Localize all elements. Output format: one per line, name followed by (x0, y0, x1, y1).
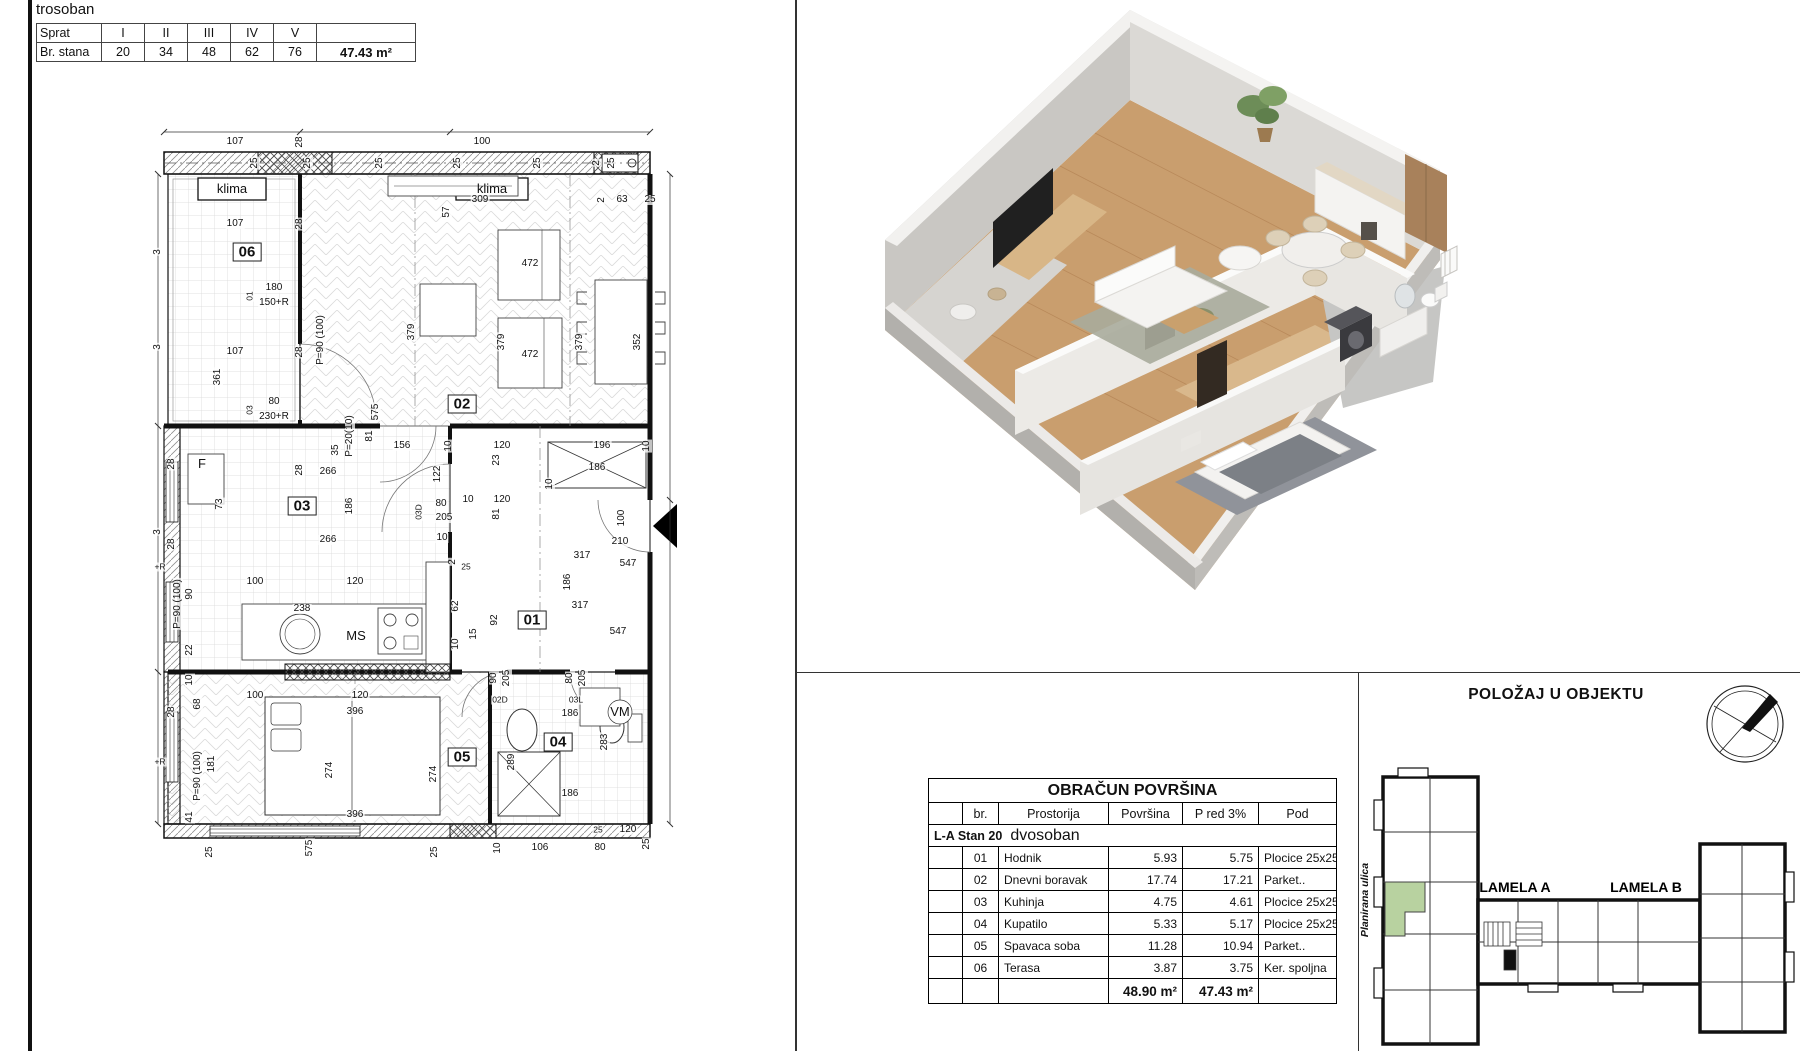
floors-cell: Sprat (37, 24, 102, 43)
area-table-cell (929, 913, 963, 935)
apartment-type-title: trosoban (36, 1, 94, 18)
iso-armchair (1219, 246, 1261, 270)
area-table-cell (929, 891, 963, 913)
area-table-cell: 5.33 (1109, 913, 1183, 935)
area-table-cell (929, 957, 963, 979)
area-table: OBRAČUN POVRŠINAbr.ProstorijaPovršinaP r… (928, 778, 1337, 1004)
room-terrace (168, 174, 300, 426)
lamela-a-label: LAMELA A (1479, 879, 1550, 895)
area-table-cell: 3.87 (1109, 957, 1183, 979)
floor-plan-2d: klimaklima252525252522510728571003092632… (150, 112, 690, 872)
floors-cell: 34 (145, 43, 188, 62)
area-table-cell (929, 979, 963, 1004)
section-divider-vertical (795, 0, 797, 1051)
drawing-sheet: trosoban SpratIIIIIIIVVBr. stana20344862… (0, 0, 1800, 1051)
area-table-cell (929, 935, 963, 957)
area-table-cell (963, 979, 999, 1004)
floors-cell: 47.43 m² (317, 43, 416, 62)
building-outline (1383, 777, 1785, 1044)
area-table-cell: 4.61 (1183, 891, 1259, 913)
area-table-cell: Dnevni boravak (999, 869, 1109, 891)
area-table-cell: 05 (963, 935, 999, 957)
area-table-cell: 48.90 m² (1109, 979, 1183, 1004)
floors-cell: 20 (102, 43, 145, 62)
area-table-cell: 02 (963, 869, 999, 891)
street-name-left: Planirana ulica (1359, 863, 1371, 937)
floor-plan-3d (845, 0, 1505, 640)
area-table-cell: 4.75 (1109, 891, 1183, 913)
area-table-cell: 5.17 (1183, 913, 1259, 935)
floor-plan-drawing (150, 112, 690, 872)
area-table-cell: 06 (963, 957, 999, 979)
area-table-cell (929, 847, 963, 869)
area-table-cell: 5.75 (1183, 847, 1259, 869)
area-table-cell: 04 (963, 913, 999, 935)
area-table-cell (999, 979, 1109, 1004)
floors-cell: 76 (274, 43, 317, 62)
entrance-marker (653, 504, 677, 548)
floors-cell: IV (231, 24, 274, 43)
hall-wardrobe (548, 442, 646, 488)
floors-cell: 48 (188, 43, 231, 62)
floors-cell: V (274, 24, 317, 43)
area-table-cell: Terasa (999, 957, 1109, 979)
floors-cell (317, 24, 416, 43)
position-block: POLOŽAJ U OBJEKTU (1358, 672, 1800, 1051)
floors-cell: 62 (231, 43, 274, 62)
floors-cell: II (145, 24, 188, 43)
area-table-cell (929, 803, 963, 825)
klima-box-1 (198, 178, 266, 200)
floors-cell: I (102, 24, 145, 43)
area-table-cell: Prostorija (999, 803, 1109, 825)
area-table-cell: L-A Stan 20dvosoban (929, 825, 1337, 847)
area-table-cell: 11.28 (1109, 935, 1183, 957)
area-table-cell: Površina (1109, 803, 1183, 825)
area-table-cell: 01 (963, 847, 999, 869)
site-plan: LAMELA A LAMELA B (1358, 672, 1800, 1051)
iso-mirror (1395, 284, 1415, 308)
floors-cell: III (188, 24, 231, 43)
area-table-cell: Parket.. (1259, 935, 1337, 957)
area-table-cell: Kuhinja (999, 891, 1109, 913)
area-table-cell: Pod (1259, 803, 1337, 825)
area-table-cell: Parket.. (1259, 869, 1337, 891)
area-table-cell (1259, 979, 1337, 1004)
area-table-cell: 5.93 (1109, 847, 1183, 869)
floors-table: SpratIIIIIIIVVBr. stana203448627647.43 m… (36, 23, 416, 62)
area-table-cell (929, 869, 963, 891)
bed (265, 697, 440, 815)
area-table-block: OBRAČUN POVRŠINAbr.ProstorijaPovršinaP r… (928, 778, 1337, 1004)
area-table-cell: 03 (963, 891, 999, 913)
area-table-cell: 10.94 (1183, 935, 1259, 957)
compass-icon (1707, 686, 1783, 762)
lamela-b-label: LAMELA B (1610, 879, 1682, 895)
area-table-cell: 3.75 (1183, 957, 1259, 979)
area-table-cell: 17.21 (1183, 869, 1259, 891)
area-table-cell: Plocice 25x25 (1259, 847, 1337, 869)
area-table-cell: OBRAČUN POVRŠINA (929, 779, 1337, 803)
area-table-cell: 47.43 m² (1183, 979, 1259, 1004)
kitchen-vent-strip (285, 664, 450, 680)
area-table-cell: br. (963, 803, 999, 825)
area-table-cell: Plocice 25x25 (1259, 891, 1337, 913)
area-table-cell: Ker. spoljna (1259, 957, 1337, 979)
area-table-cell: Hodnik (999, 847, 1109, 869)
area-table-cell: Plocice 25x25 (1259, 913, 1337, 935)
area-table-cell: Kupatilo (999, 913, 1109, 935)
area-table-cell: P red 3% (1183, 803, 1259, 825)
area-table-cell: Spavaca soba (999, 935, 1109, 957)
area-table-cell: 17.74 (1109, 869, 1183, 891)
sheet-frame-edge (28, 0, 32, 1051)
floors-cell: Br. stana (37, 43, 102, 62)
